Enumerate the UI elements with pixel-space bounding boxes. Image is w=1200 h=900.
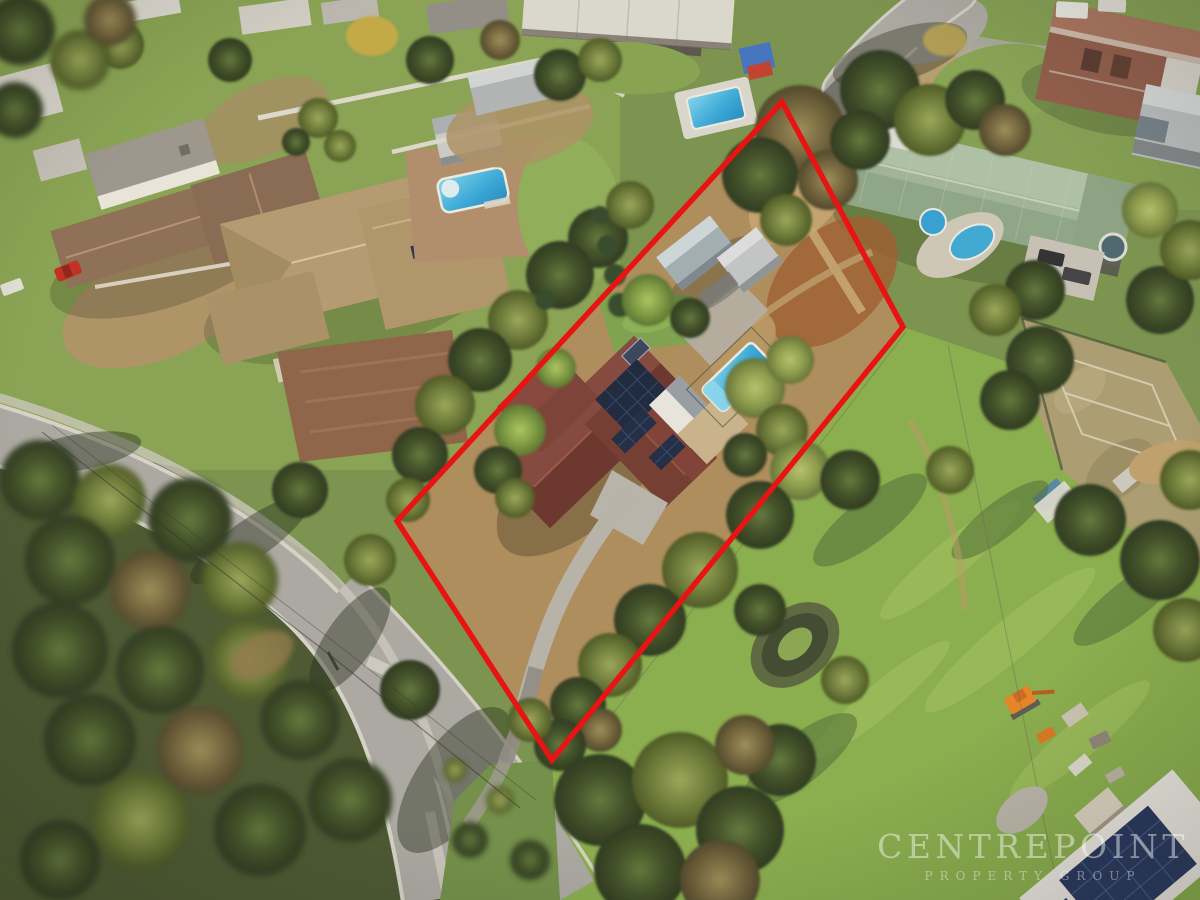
vignette xyxy=(0,0,1200,900)
watermark-tagline: PROPERTY GROUP xyxy=(925,869,1142,883)
aerial-photo: CENTREPOINT PROPERTY GROUP xyxy=(0,0,1200,900)
watermark-brand: CENTREPOINT xyxy=(877,827,1189,866)
